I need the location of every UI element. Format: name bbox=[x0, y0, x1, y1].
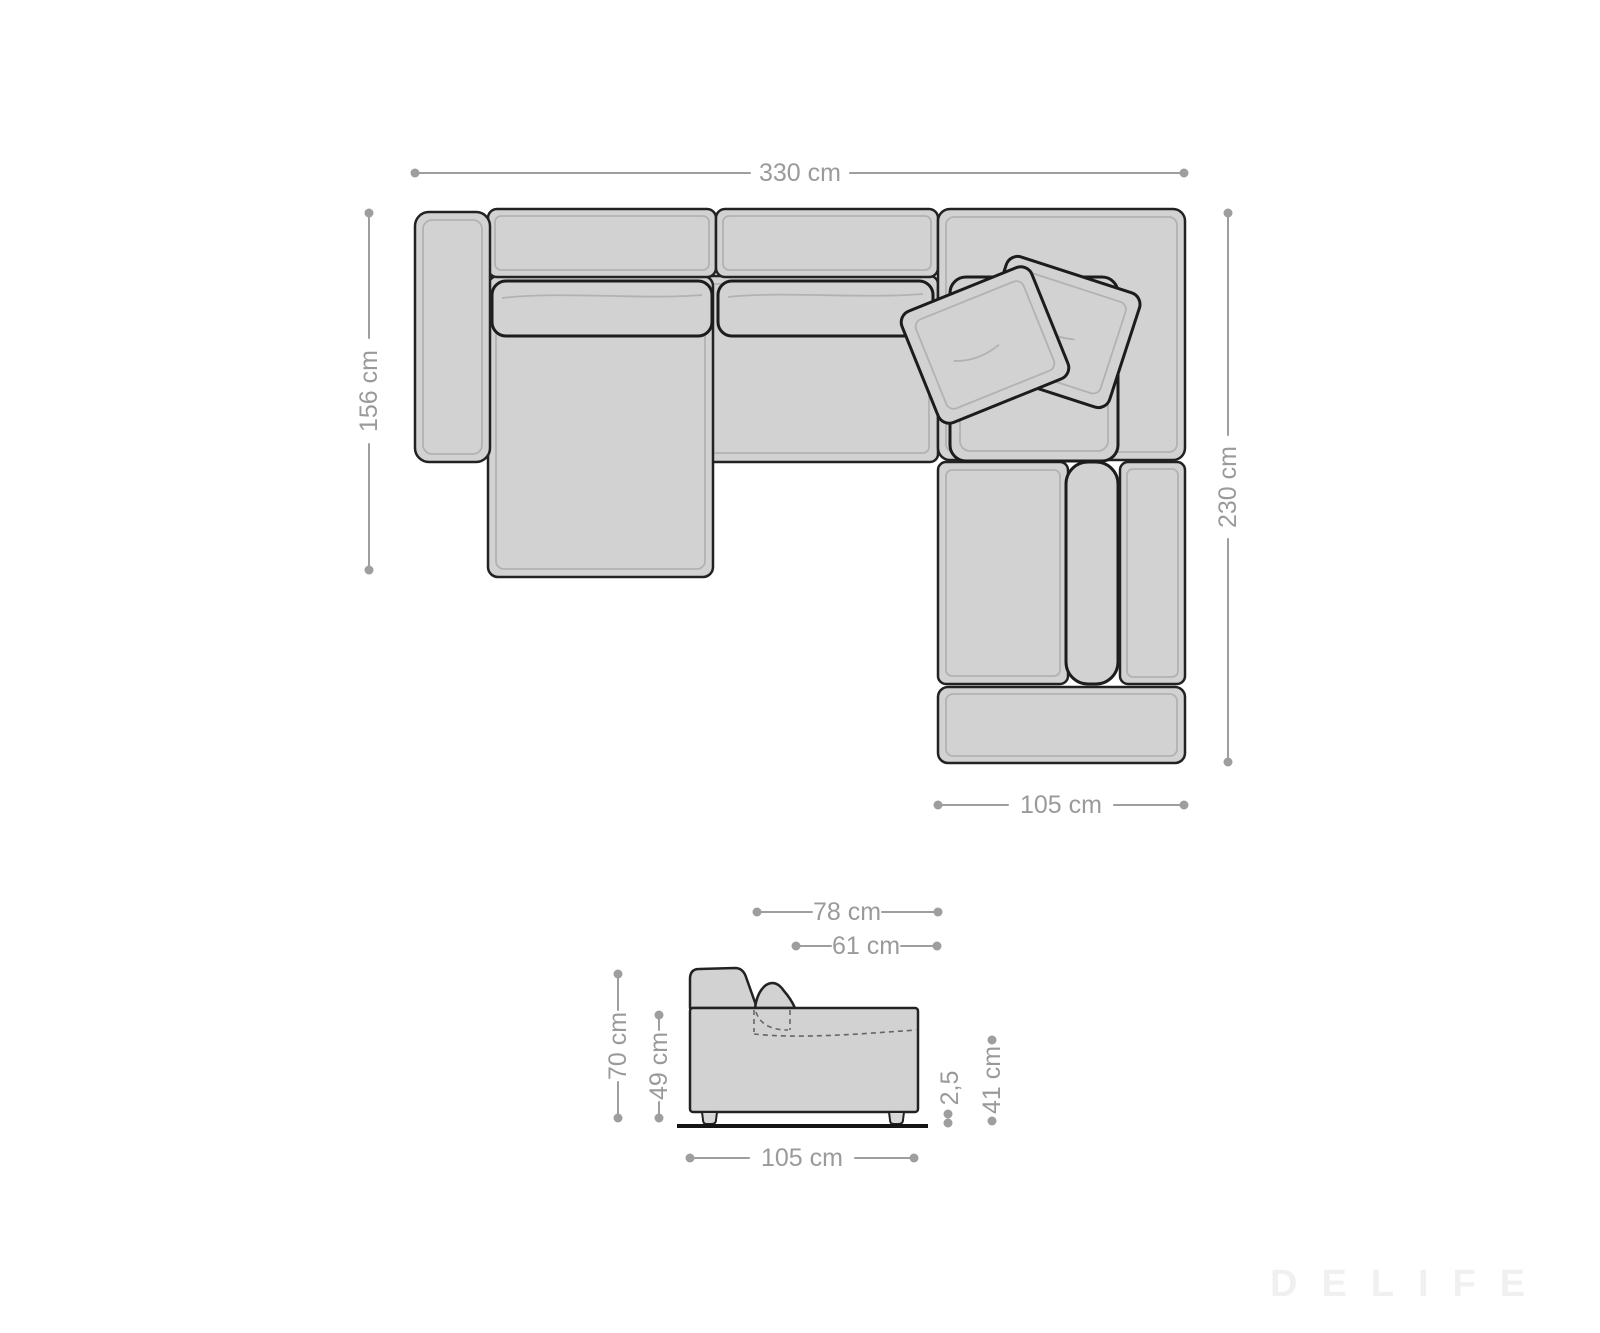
dim-dot bbox=[944, 1119, 953, 1128]
seat-cushion-left bbox=[492, 281, 712, 336]
side-leg-right bbox=[889, 1112, 904, 1124]
dim-right-depth: 230 cm bbox=[1214, 209, 1242, 767]
dim-label-width-bottom: 105 cm bbox=[761, 1144, 843, 1172]
dim-dot bbox=[365, 566, 374, 575]
sofa-top-view bbox=[415, 209, 1185, 763]
dim-label-depth-top: 78 cm bbox=[813, 898, 881, 926]
diagram-canvas: 330 cm 156 cm 230 cm 105 cm bbox=[0, 0, 1600, 1333]
furniture-dimension-diagram: 330 cm 156 cm 230 cm 105 cm bbox=[0, 0, 1600, 1333]
sofa-side-view bbox=[677, 968, 928, 1126]
dim-dot bbox=[365, 209, 374, 218]
dim-label-clearance: 2,5 bbox=[936, 1071, 964, 1106]
dim-dot bbox=[792, 942, 801, 951]
dim-dot bbox=[933, 942, 942, 951]
backrest-left bbox=[488, 209, 716, 277]
dim-dot bbox=[753, 908, 762, 917]
dim-label-right-depth: 230 cm bbox=[1214, 446, 1242, 528]
dim-label-right-width: 105 cm bbox=[1020, 791, 1102, 819]
side-body bbox=[690, 1008, 918, 1112]
right-seat-panel bbox=[938, 462, 1068, 684]
dim-depth-inner: 61 cm bbox=[792, 932, 942, 960]
right-back-cushion bbox=[1066, 462, 1118, 684]
dim-label-chaise-depth: 156 cm bbox=[355, 350, 383, 432]
dim-right-width: 105 cm bbox=[934, 791, 1189, 819]
brand-watermark: DELIFE bbox=[1270, 1263, 1549, 1305]
side-pillow bbox=[755, 983, 795, 1008]
side-leg-left bbox=[702, 1112, 717, 1124]
right-armrest bbox=[938, 687, 1185, 763]
dim-dot bbox=[655, 1011, 664, 1020]
dim-label-height-body: 49 cm bbox=[645, 1032, 673, 1100]
dim-height-body: 49 cm bbox=[645, 1011, 673, 1123]
dim-dot bbox=[1180, 169, 1189, 178]
dim-dot bbox=[686, 1154, 695, 1163]
dim-dot bbox=[910, 1154, 919, 1163]
dim-label-height-total: 70 cm bbox=[604, 1012, 632, 1080]
dim-dot bbox=[1180, 801, 1189, 810]
right-side-panel bbox=[1120, 462, 1185, 684]
seat-cushion-right bbox=[718, 281, 933, 336]
dim-dot bbox=[934, 908, 943, 917]
dim-label-seat-height: 41 cm bbox=[978, 1046, 1006, 1114]
dim-seat-height: 41 cm bbox=[978, 1036, 1006, 1126]
dim-clearance: 2,5 bbox=[936, 1071, 964, 1128]
dim-dot bbox=[655, 1114, 664, 1123]
dim-total-width: 330 cm bbox=[411, 159, 1189, 187]
dim-label-total-width: 330 cm bbox=[759, 159, 841, 187]
dim-dot bbox=[614, 1114, 623, 1123]
top-view: 330 cm 156 cm 230 cm 105 cm bbox=[355, 159, 1242, 819]
dim-dot bbox=[934, 801, 943, 810]
dim-height-total: 70 cm bbox=[604, 970, 632, 1123]
dim-dot bbox=[988, 1117, 997, 1126]
dim-dot bbox=[411, 169, 420, 178]
dim-dot bbox=[1224, 209, 1233, 218]
dim-dot bbox=[1224, 758, 1233, 767]
backrest-right bbox=[716, 209, 938, 277]
dim-depth-top: 78 cm bbox=[753, 898, 943, 926]
dim-dot bbox=[614, 970, 623, 979]
side-view: 78 cm 61 cm 70 cm 49 cm bbox=[604, 898, 1006, 1172]
side-backrest bbox=[690, 968, 757, 1008]
dim-dot bbox=[988, 1036, 997, 1045]
dim-label-depth-inner: 61 cm bbox=[832, 932, 900, 960]
dim-chaise-depth: 156 cm bbox=[355, 209, 383, 575]
left-armrest bbox=[415, 212, 490, 462]
dim-width-bottom: 105 cm bbox=[686, 1144, 919, 1172]
dim-dot bbox=[944, 1110, 953, 1119]
